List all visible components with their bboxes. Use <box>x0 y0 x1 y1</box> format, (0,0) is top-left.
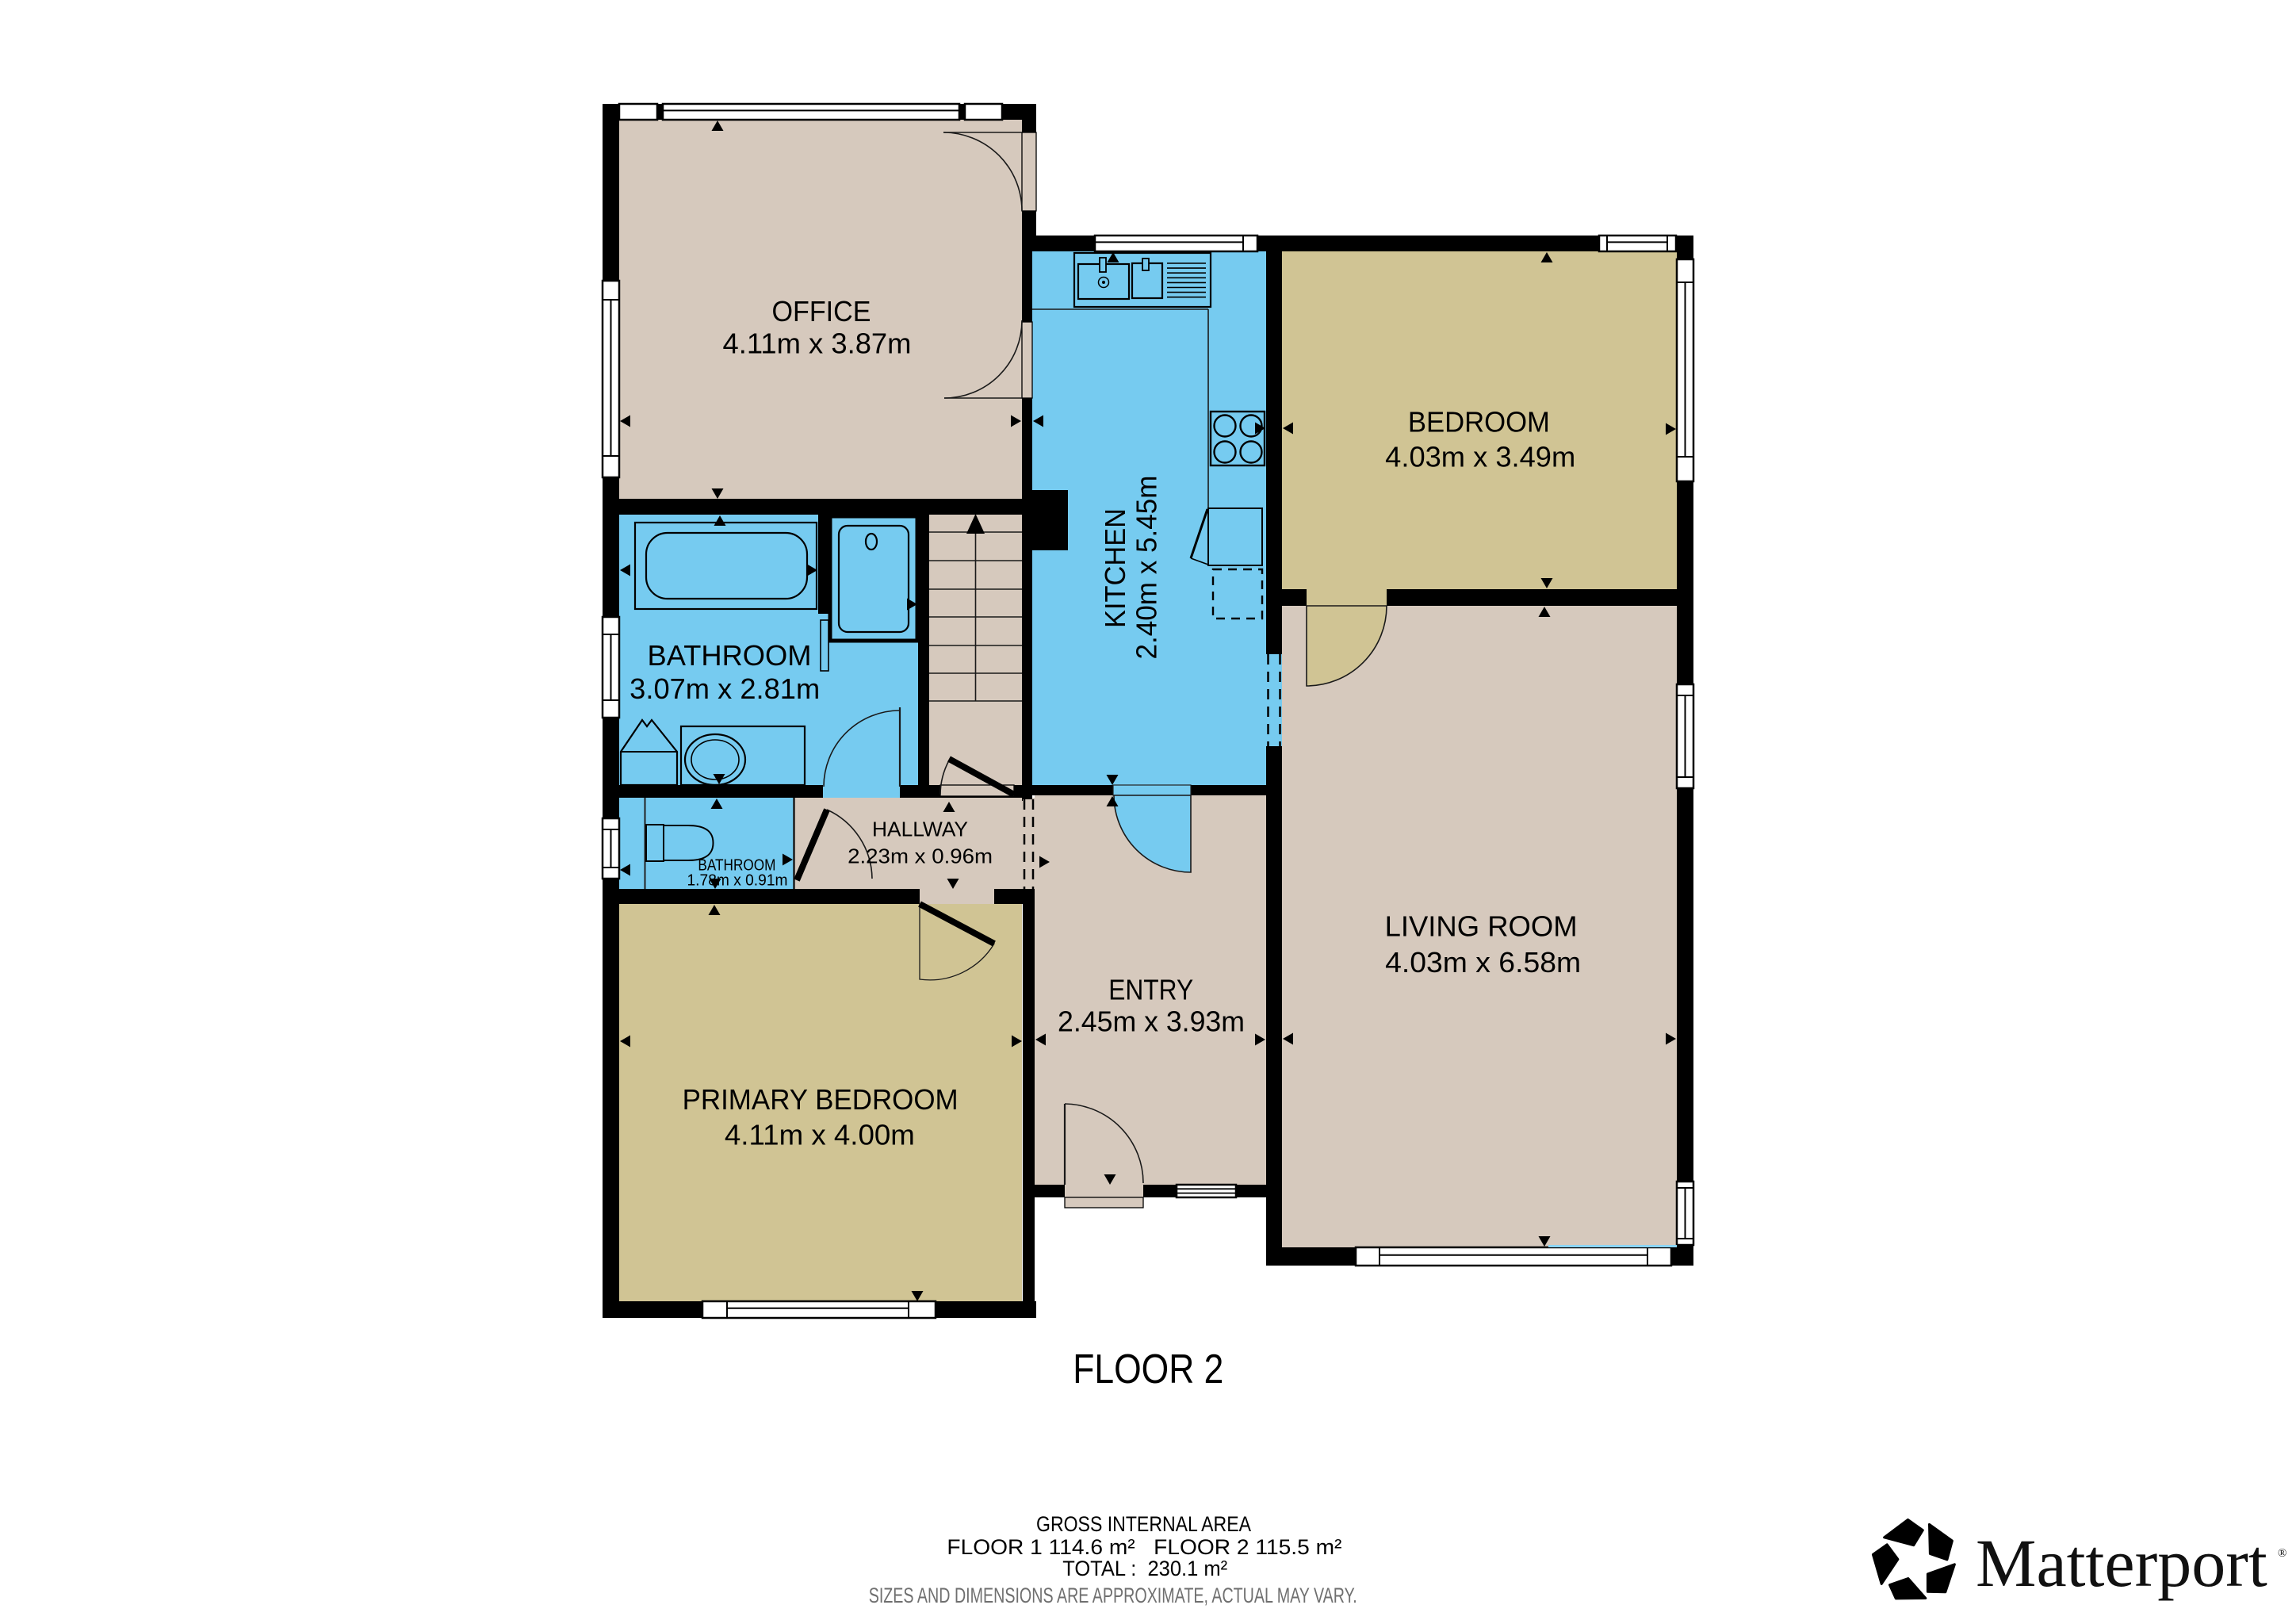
svg-text:3.07m x 2.81m: 3.07m x 2.81m <box>629 672 820 705</box>
svg-text:1.78m x 0.91m: 1.78m x 0.91m <box>687 872 788 890</box>
svg-text:FLOOR 1 114.6 m² FLOOR 2 115: FLOOR 1 114.6 m² FLOOR 2 115.5 m² <box>947 1535 1341 1559</box>
svg-text:Matterport: Matterport <box>1976 1525 2267 1601</box>
svg-text:4.11m x 3.87m: 4.11m x 3.87m <box>723 327 912 360</box>
svg-text:KITCHEN: KITCHEN <box>1099 508 1131 628</box>
svg-text:HALLWAY: HALLWAY <box>872 818 968 841</box>
svg-text:®: ® <box>2278 1547 2286 1560</box>
svg-text:PRIMARY BEDROOM: PRIMARY BEDROOM <box>683 1083 959 1116</box>
svg-text:OFFICE: OFFICE <box>772 295 871 327</box>
svg-text:2.23m x 0.96m: 2.23m x 0.96m <box>848 845 993 868</box>
svg-text:4.11m x 4.00m: 4.11m x 4.00m <box>725 1119 915 1151</box>
svg-text:4.03m x 3.49m: 4.03m x 3.49m <box>1385 440 1575 473</box>
svg-text:BEDROOM: BEDROOM <box>1408 406 1550 439</box>
svg-text:ENTRY: ENTRY <box>1108 974 1193 1006</box>
svg-text:FLOOR 2: FLOOR 2 <box>1073 1346 1223 1392</box>
svg-text:LIVING ROOM: LIVING ROOM <box>1385 910 1578 942</box>
svg-text:BATHROOM: BATHROOM <box>648 639 812 672</box>
svg-text:2.40m x 5.45m: 2.40m x 5.45m <box>1131 476 1163 660</box>
svg-text:GROSS INTERNAL AREA: GROSS INTERNAL AREA <box>1036 1512 1251 1536</box>
svg-text:TOTAL : 230.1 m²: TOTAL : 230.1 m² <box>1062 1557 1227 1580</box>
svg-text:4.03m x 6.58m: 4.03m x 6.58m <box>1385 946 1581 979</box>
svg-text:2.45m x 3.93m: 2.45m x 3.93m <box>1058 1005 1245 1038</box>
svg-text:SIZES AND DIMENSIONS ARE APPRO: SIZES AND DIMENSIONS ARE APPROXIMATE, AC… <box>869 1584 1357 1607</box>
